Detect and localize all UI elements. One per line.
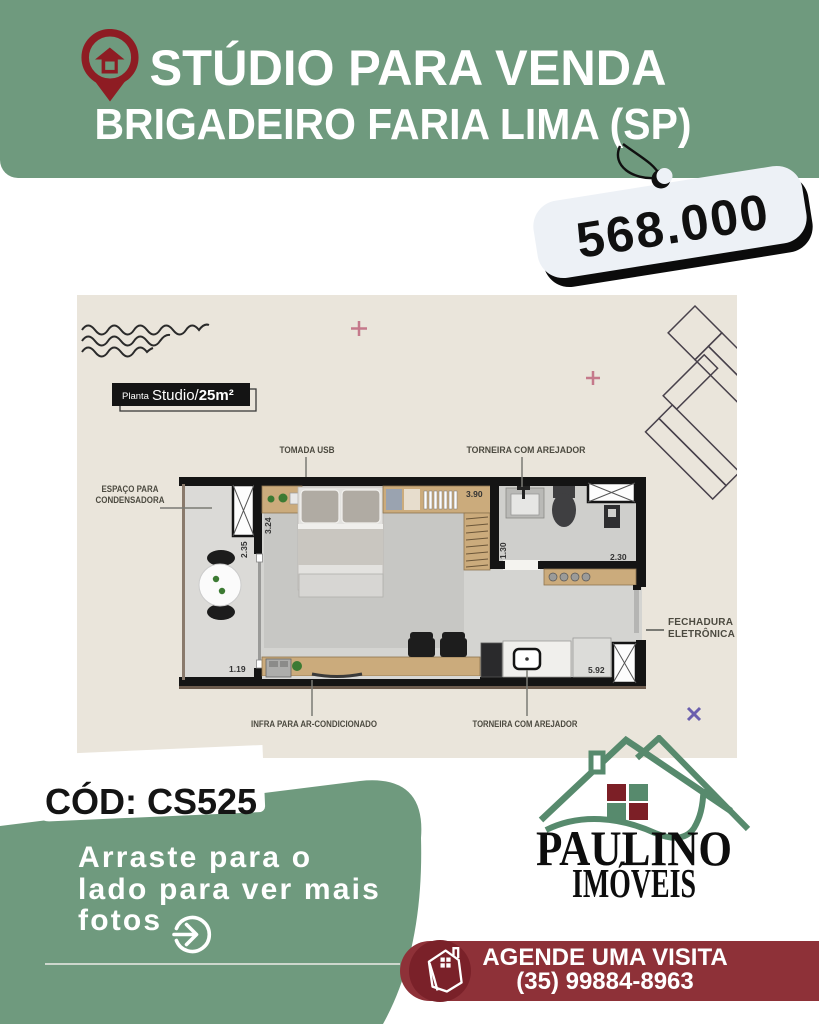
svg-text:TOMADA USB: TOMADA USB [280,445,335,455]
svg-text:5.92: 5.92 [588,665,605,675]
svg-text:Planta: Planta [122,391,150,402]
svg-text:3.90: 3.90 [466,489,483,499]
svg-text:1.30: 1.30 [498,542,508,559]
svg-text:IMÓVEIS: IMÓVEIS [572,860,696,905]
svg-text:2.35: 2.35 [239,541,249,558]
svg-text:Studio/25m²: Studio/25m² [152,387,234,404]
svg-text:TORNEIRA COM AREJADOR: TORNEIRA COM AREJADOR [467,445,586,455]
svg-text:1.19: 1.19 [229,664,246,674]
svg-text:INFRA PARA AR-CONDICIONADO: INFRA PARA AR-CONDICIONADO [251,719,377,729]
svg-text:ESPAÇO PARA: ESPAÇO PARA [102,484,159,494]
svg-text:TORNEIRA COM AREJADOR: TORNEIRA COM AREJADOR [473,719,578,729]
svg-text:3.24: 3.24 [263,517,273,534]
svg-text:CONDENSADORA: CONDENSADORA [96,495,165,505]
svg-text:STÚDIO PARA VENDA: STÚDIO PARA VENDA [150,40,667,96]
svg-text:2.30: 2.30 [610,552,627,562]
